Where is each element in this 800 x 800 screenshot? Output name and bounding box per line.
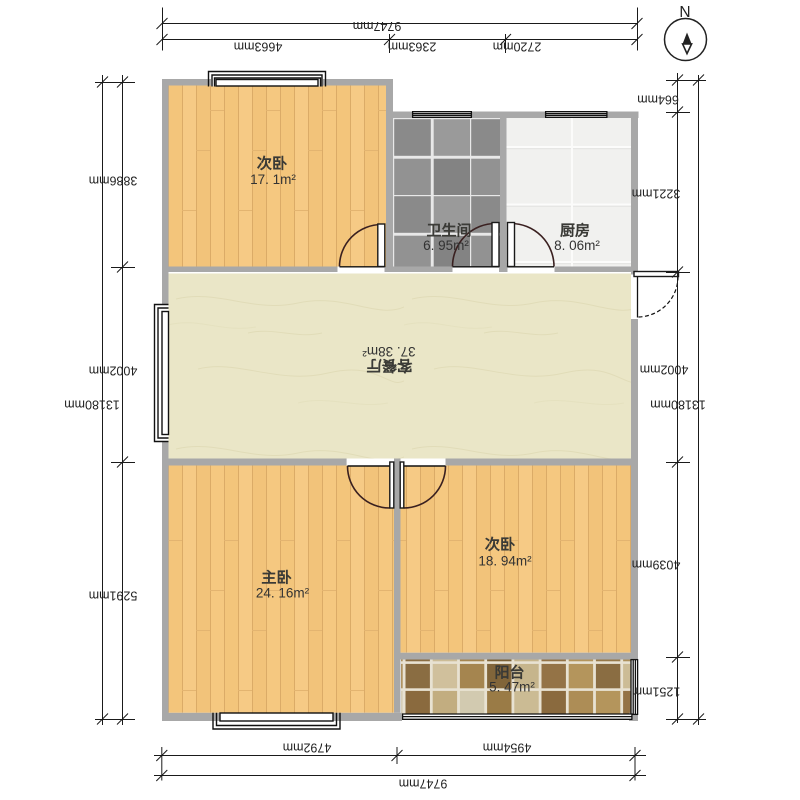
svg-text:37. 38m²: 37. 38m² <box>362 344 416 359</box>
svg-text:13180mm: 13180mm <box>650 398 706 412</box>
svg-text:24. 16m²: 24. 16m² <box>256 585 310 600</box>
svg-text:3886mm: 3886mm <box>89 174 138 188</box>
svg-text:4002mm: 4002mm <box>640 363 689 377</box>
svg-text:664mm: 664mm <box>637 93 679 107</box>
svg-text:9747mm: 9747mm <box>399 777 448 791</box>
svg-text:4663mm: 4663mm <box>234 40 283 54</box>
svg-text:3221mm: 3221mm <box>632 187 681 201</box>
svg-text:13180mm: 13180mm <box>64 398 120 412</box>
svg-text:1251mm: 1251mm <box>632 685 681 699</box>
svg-text:5291mm: 5291mm <box>89 589 138 603</box>
svg-text:8. 06m²: 8. 06m² <box>554 238 600 253</box>
svg-text:18. 94m²: 18. 94m² <box>478 553 532 568</box>
svg-text:9747mm: 9747mm <box>353 19 402 33</box>
svg-text:6. 95m²: 6. 95m² <box>423 238 469 253</box>
svg-text:4792mm: 4792mm <box>283 741 332 755</box>
svg-text:N: N <box>679 4 690 21</box>
svg-text:4039mm: 4039mm <box>632 558 681 572</box>
svg-text:2720mm: 2720mm <box>493 40 542 54</box>
svg-text:4954mm: 4954mm <box>483 741 532 755</box>
svg-text:17. 1m²: 17. 1m² <box>250 172 296 187</box>
svg-text:4002mm: 4002mm <box>89 364 138 378</box>
svg-text:5. 47m²: 5. 47m² <box>489 679 535 694</box>
svg-text:2363mm: 2363mm <box>388 40 437 54</box>
